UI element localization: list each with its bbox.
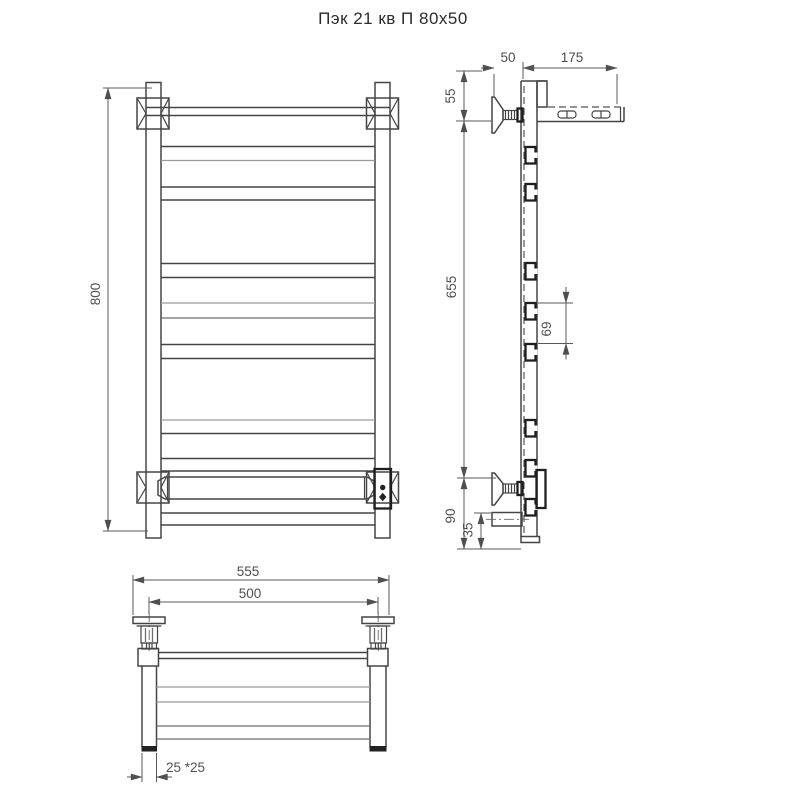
dim-side-wall-offset: 50 (481, 50, 536, 96)
side-heating-element (486, 513, 529, 527)
dim-side-rung-gap: 69 (538, 287, 573, 360)
dim-top-profile: 25 *25 (127, 753, 205, 782)
dim-side-element-offset: 35 (461, 513, 492, 549)
top-view: 555 500 25 *25 (127, 564, 394, 782)
side-view: 50 175 55 655 69 (443, 50, 624, 549)
side-rung-marks (526, 147, 538, 516)
side-shelf (537, 107, 624, 122)
top-wall-mount-right (362, 612, 394, 651)
top-right-post-head (368, 649, 389, 667)
top-shelf-rails (157, 653, 371, 740)
front-bracket-top-right (367, 98, 399, 129)
top-wall-mount-left (133, 612, 165, 651)
front-rungs (161, 147, 375, 526)
side-shelf-riser (537, 81, 547, 107)
front-left-post (146, 83, 161, 539)
dim-front-height-label: 800 (88, 283, 103, 306)
side-shelf-slot (558, 111, 576, 118)
drawing-title: Пэк 21 кв П 80х50 (318, 9, 468, 28)
drawing-canvas: Пэк 21 кв П 80х50 (0, 0, 800, 800)
dim-side-top-offset-label: 55 (443, 88, 458, 103)
front-view: 800 (88, 83, 399, 539)
side-switch-plate (537, 470, 546, 508)
dim-side-wall-offset-label: 50 (500, 50, 515, 65)
dim-side-element-offset-label: 35 (461, 522, 476, 537)
dim-top-profile-label: 25 *25 (166, 760, 205, 775)
dim-side-top-offset: 55 (443, 71, 491, 121)
dim-side-bottom-offset-label: 90 (443, 508, 458, 523)
dim-side-rung-gap-label: 69 (539, 321, 554, 336)
dim-side-shelf-depth-label: 175 (561, 50, 584, 65)
side-post-foot (521, 537, 540, 543)
dim-top-mount-spacing: 500 (149, 586, 378, 614)
dim-side-mount-span-label: 655 (444, 276, 459, 299)
front-bracket-top-left (137, 98, 169, 129)
dim-front-height: 800 (88, 88, 152, 531)
tube-end-cap (142, 746, 158, 752)
side-wall-mount-bottom (492, 473, 523, 505)
tube-end-cap (370, 746, 387, 752)
dim-top-mount-spacing-label: 500 (239, 586, 262, 601)
top-left-post-head (138, 649, 159, 667)
side-shelf-slot (592, 111, 610, 118)
technical-drawing: Пэк 21 кв П 80х50 (0, 0, 800, 800)
side-wall-mount-top (492, 97, 523, 133)
front-heater-bar (158, 477, 374, 499)
power-switch-dot (379, 493, 386, 501)
power-indicator-dot (380, 485, 385, 490)
dim-side-mount-span: 655 (444, 121, 496, 478)
dim-top-overall-width-label: 555 (237, 564, 260, 579)
